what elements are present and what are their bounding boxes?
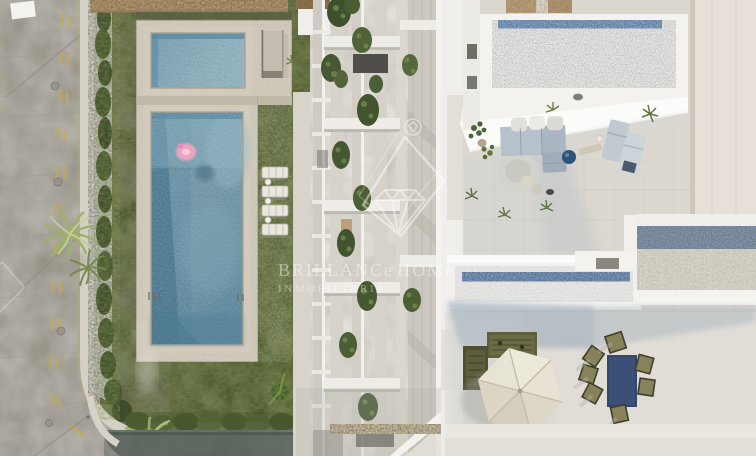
svg-text:HOMe: HOMe [397, 260, 455, 280]
svg-text:INMOBILIARIA: INMOBILIARIA [278, 283, 387, 295]
svg-text:BRILLANCe: BRILLANCe [278, 260, 394, 280]
